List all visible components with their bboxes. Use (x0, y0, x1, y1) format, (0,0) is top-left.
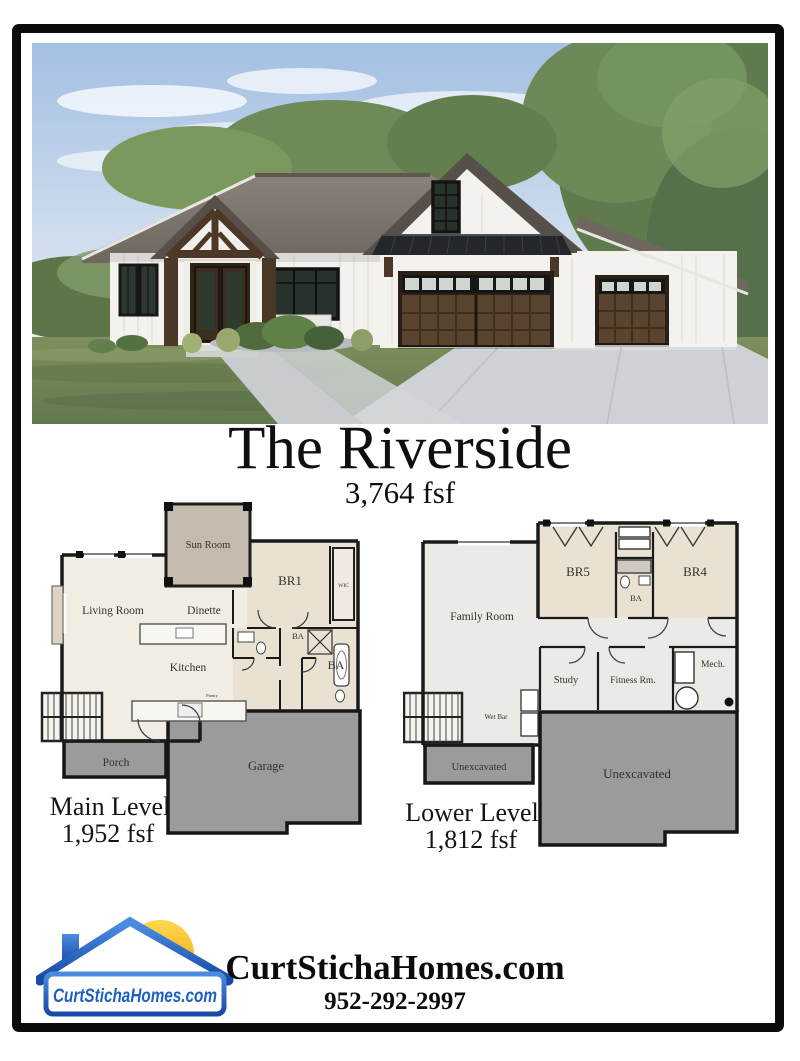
footer-contact: CurtStichaHomes.com 952-292-2997 (215, 948, 575, 1016)
label-study: Study (554, 675, 579, 686)
flyer-page: The Riverside 3,764 fsf (0, 0, 800, 1061)
label-br1: BR1 (278, 573, 302, 588)
label-living-room: Living Room (82, 605, 144, 617)
label-wic: WIC (338, 583, 349, 589)
label-unexcavated-right: Unexcavated (603, 766, 671, 781)
lower-level-area: 1,812 fsf (425, 825, 518, 854)
house-photo (32, 43, 768, 424)
label-br5: BR5 (566, 564, 590, 579)
logo-text: CurtStichaHomes.com (53, 986, 217, 1007)
label-mech: Mech. (701, 660, 725, 670)
stairs (42, 693, 102, 741)
label-sun-room: Sun Room (186, 540, 231, 551)
curt-sticha-logo: CurtStichaHomes.com (36, 914, 234, 1020)
label-family-room: Family Room (450, 611, 514, 623)
label-dinette: Dinette (187, 605, 221, 617)
label-kitchen: Kitchen (170, 662, 207, 674)
label-garage: Garage (248, 759, 285, 773)
wet-bar-fixtures (521, 690, 538, 736)
label-ba-hall: BA (292, 631, 305, 641)
footer-phone: 952-292-2997 (215, 988, 575, 1016)
label-ba-lower: BA (630, 593, 643, 603)
lower-level-caption: Lower Level (405, 798, 539, 827)
plan-title: The Riverside (0, 418, 800, 479)
stairs-lower (404, 693, 462, 742)
label-br4: BR4 (683, 564, 707, 579)
house-photo-illustration (32, 43, 768, 424)
main-level-caption: Main Level (50, 792, 171, 821)
label-porch: Porch (103, 757, 130, 769)
label-pantry: Pantry (206, 693, 218, 698)
lower-level-floorplan: Family Room BR5 BR4 BA Study Fitness Rm.… (403, 502, 768, 857)
label-ba-primary: BA (328, 658, 345, 672)
label-wet-bar: Wet Bar (485, 713, 509, 721)
footer-website: CurtStichaHomes.com (215, 948, 575, 988)
single-garage-door (595, 275, 669, 347)
main-level-area: 1,952 fsf (62, 819, 155, 848)
left-windows (120, 265, 157, 315)
label-unexcavated-left: Unexcavated (452, 762, 508, 773)
double-garage-door (398, 271, 554, 349)
main-level-floorplan: Sun Room Living Room Dinette BR1 WIC Kit… (40, 498, 380, 850)
label-fitness: Fitness Rm. (610, 676, 655, 686)
